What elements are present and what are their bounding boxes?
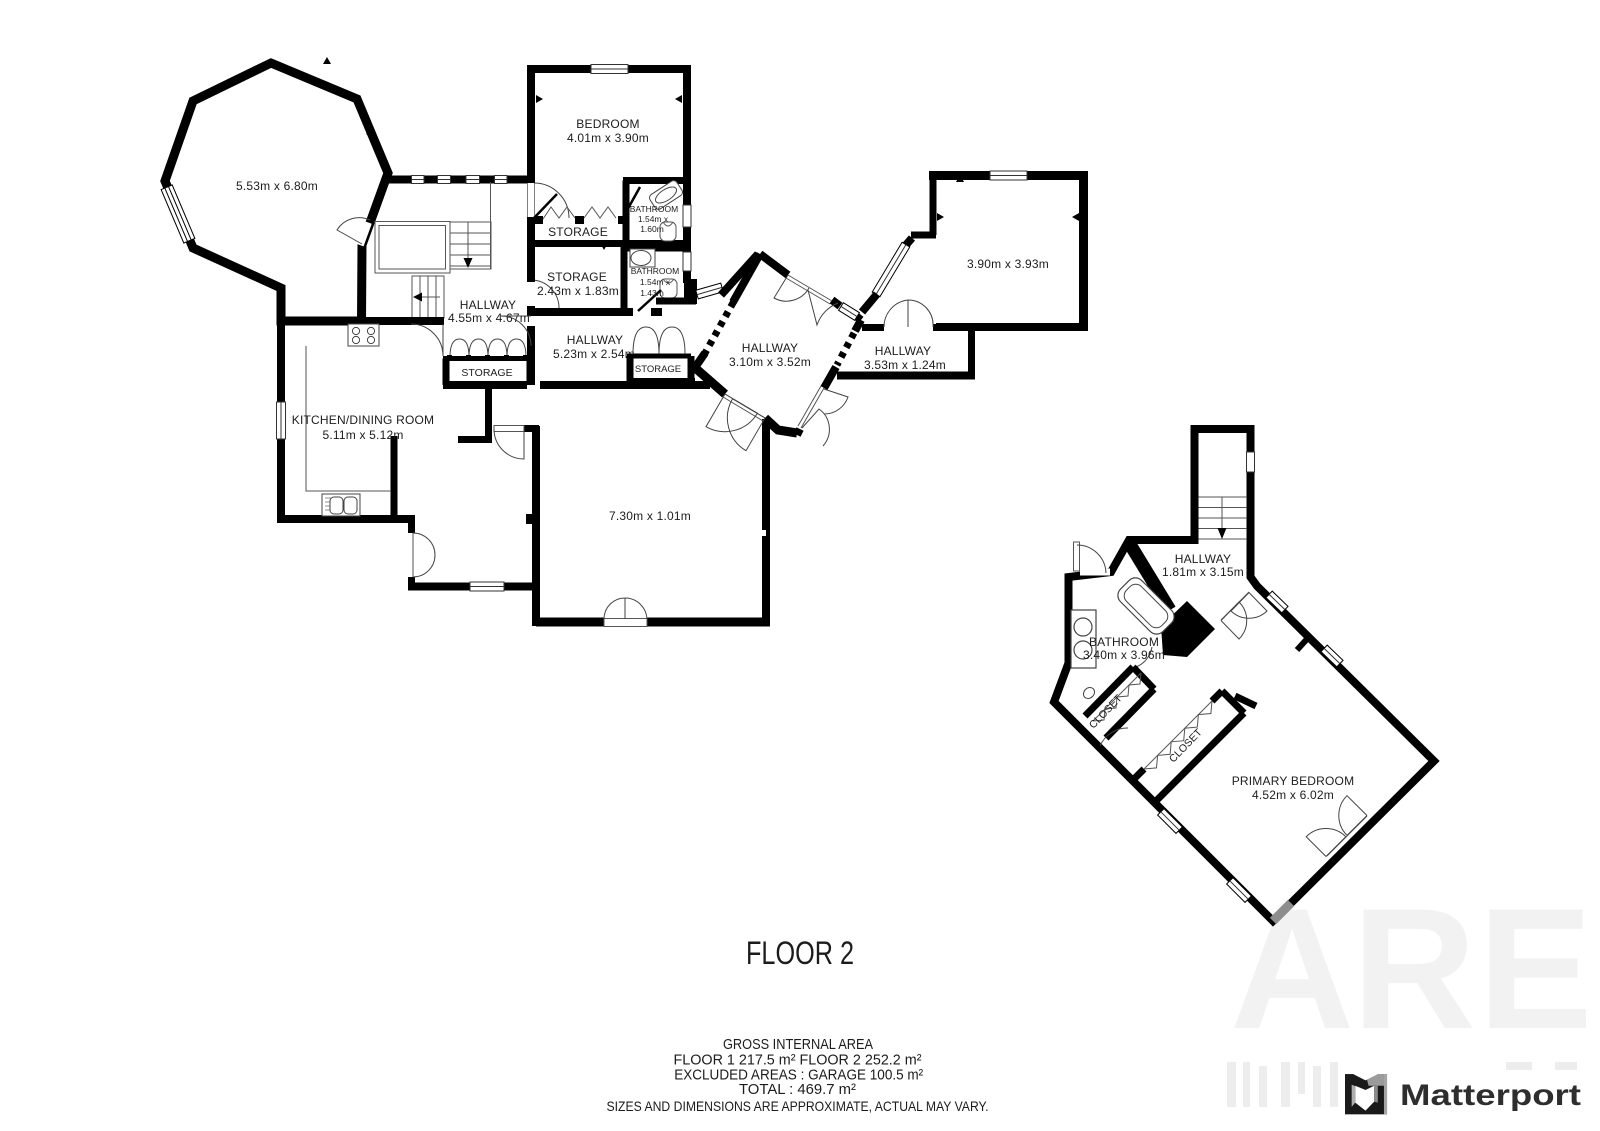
svg-text:STORAGE: STORAGE <box>635 364 681 375</box>
svg-text:HALLWAY: HALLWAY <box>567 333 624 347</box>
svg-text:HALLWAY: HALLWAY <box>742 341 799 355</box>
svg-text:BATHROOM: BATHROOM <box>631 266 679 276</box>
svg-text:PRIMARY BEDROOM: PRIMARY BEDROOM <box>1232 774 1355 788</box>
svg-text:HALLWAY: HALLWAY <box>875 344 932 358</box>
svg-text:4.52m x 6.02m: 4.52m x 6.02m <box>1252 788 1334 802</box>
svg-text:4.55m x 4.67m: 4.55m x 4.67m <box>448 311 530 325</box>
svg-text:7.30m x 1.01m: 7.30m x 1.01m <box>609 509 691 523</box>
svg-text:HALLWAY: HALLWAY <box>460 298 517 312</box>
svg-text:TOTAL : 469.7 m²: TOTAL : 469.7 m² <box>739 1081 856 1098</box>
svg-text:SIZES AND DIMENSIONS ARE APPRO: SIZES AND DIMENSIONS ARE APPROXIMATE, AC… <box>607 1098 989 1114</box>
svg-text:4.01m x 3.90m: 4.01m x 3.90m <box>567 131 649 145</box>
svg-text:3.10m x 3.52m: 3.10m x 3.52m <box>729 355 811 369</box>
svg-text:STORAGE: STORAGE <box>461 367 512 379</box>
svg-text:HALLWAY: HALLWAY <box>1175 552 1232 566</box>
svg-text:BATHROOM: BATHROOM <box>630 204 678 214</box>
svg-text:KITCHEN/DINING ROOM: KITCHEN/DINING ROOM <box>292 413 434 427</box>
svg-text:BATHROOM: BATHROOM <box>1089 635 1159 649</box>
svg-text:3.40m x 3.96m: 3.40m x 3.96m <box>1083 648 1165 662</box>
svg-text:STORAGE: STORAGE <box>548 225 608 239</box>
svg-text:BEDROOM: BEDROOM <box>576 117 639 131</box>
svg-text:1.43m: 1.43m <box>640 288 664 298</box>
svg-text:1.54m x: 1.54m x <box>640 277 671 287</box>
svg-text:GROSS INTERNAL AREA: GROSS INTERNAL AREA <box>723 1036 873 1053</box>
svg-text:E: E <box>1478 873 1593 1065</box>
svg-text:1.81m x 3.15m: 1.81m x 3.15m <box>1162 565 1244 579</box>
svg-text:3.90m x 3.93m: 3.90m x 3.93m <box>967 257 1049 271</box>
svg-text:2.43m x 1.83m: 2.43m x 1.83m <box>537 284 619 298</box>
svg-text:R: R <box>1352 873 1476 1065</box>
svg-text:STORAGE: STORAGE <box>547 270 607 284</box>
svg-text:5.11m x 5.12m: 5.11m x 5.12m <box>322 428 403 442</box>
svg-text:5.23m x 2.54m: 5.23m x 2.54m <box>553 347 635 361</box>
svg-text:FLOOR 2: FLOOR 2 <box>746 935 854 971</box>
svg-text:3.53m x 1.24m: 3.53m x 1.24m <box>864 358 946 372</box>
svg-text:5.53m x 6.80m: 5.53m x 6.80m <box>236 179 318 193</box>
svg-text:1.54m x: 1.54m x <box>638 214 669 224</box>
svg-text:Matterport: Matterport <box>1400 1079 1581 1112</box>
svg-text:1.60m: 1.60m <box>640 224 664 234</box>
